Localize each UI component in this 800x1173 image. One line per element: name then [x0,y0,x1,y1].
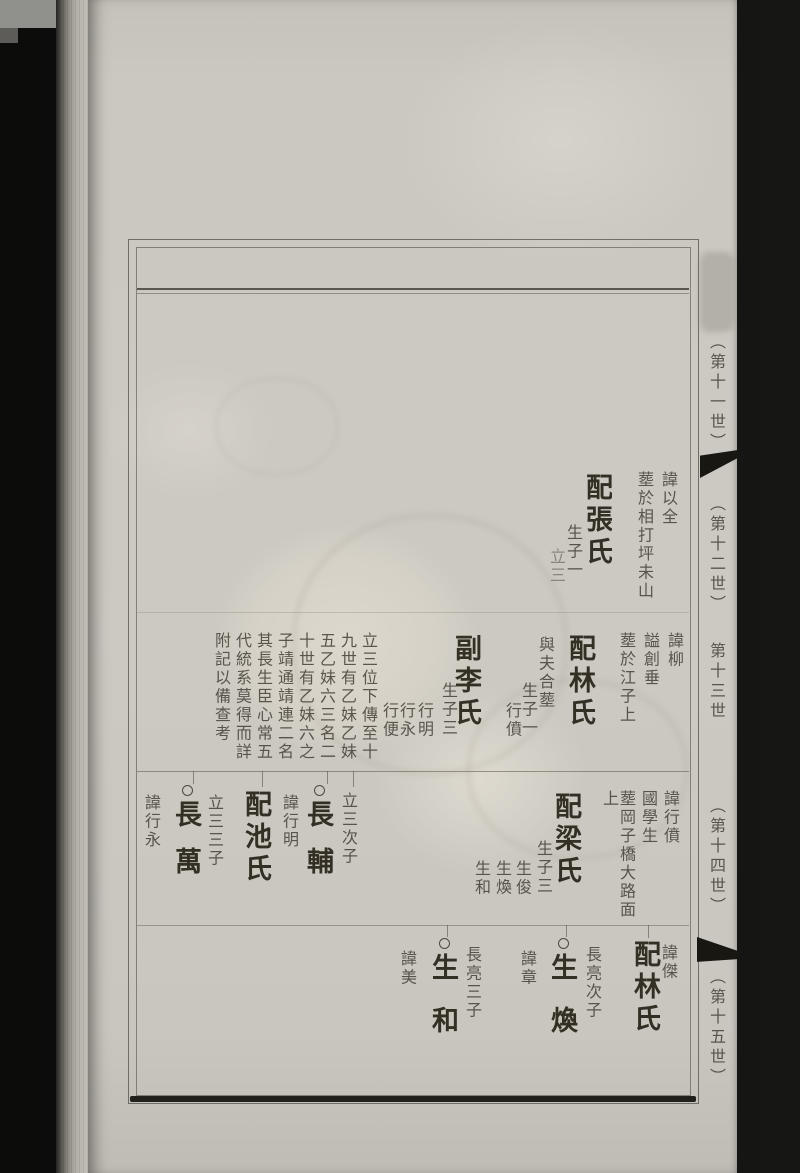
stacked-page-edges [56,0,88,1173]
header-rule [137,288,689,290]
descent-line [262,771,263,787]
book-edge-corner [0,0,64,28]
margin-label-generation-12: （第十二世） [708,495,724,615]
header-rule-thin [137,293,689,294]
descent-line [193,771,194,784]
margin-label-generation-13: 第十三世 [708,642,724,722]
descent-line [327,771,328,784]
descent-line [648,925,649,938]
descent-line [447,925,448,937]
ink-bleed-smudge [700,252,734,332]
lineage-circle-mark [182,785,193,796]
margin-label-generation-11: （第十一世） [708,333,724,453]
lineage-circle-mark [558,938,569,949]
inner-border-frame [136,247,691,1096]
descent-line [566,925,567,937]
book-edge-corner-small [0,28,18,43]
generation-row-divider [137,925,689,926]
margin-label-generation-14: （第十四世） [708,797,724,917]
margin-label-generation-15: （第十五世） [708,968,724,1088]
generation-row-divider [137,771,689,772]
lineage-circle-mark [314,785,325,796]
bottom-border-thick [130,1096,696,1102]
descent-line [353,771,354,787]
generation-row-divider [137,612,689,613]
book-scan: （第十一世）（第十二世）第十三世（第十四世）（第十五世） 諱以全塟於相打坪未山配… [0,0,800,1173]
lineage-circle-mark [439,938,450,949]
